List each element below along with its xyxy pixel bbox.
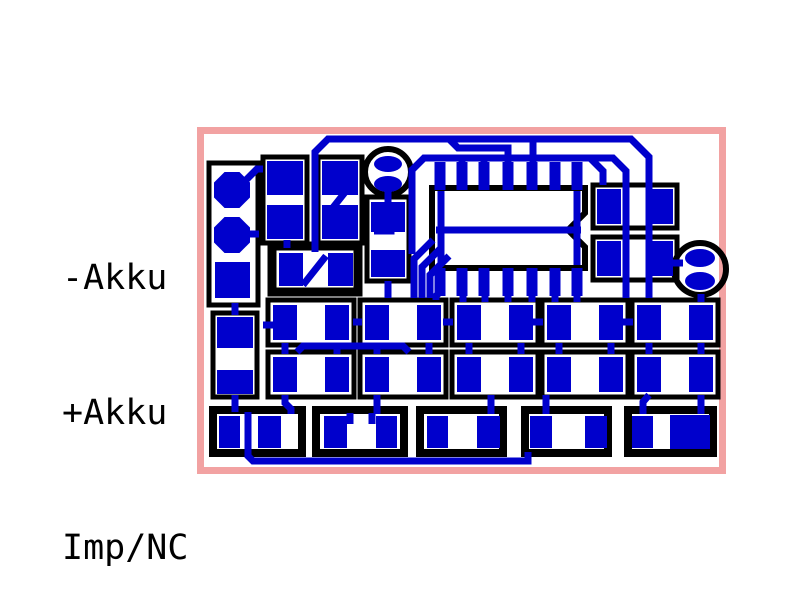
pad: [325, 357, 349, 392]
pad: [689, 305, 713, 340]
pad: [371, 250, 405, 277]
pad: [217, 317, 253, 348]
pad: [457, 305, 481, 340]
ic-pad: [479, 268, 490, 296]
pad: [599, 305, 623, 340]
pad: [322, 205, 358, 239]
screenshot-root: -Akku +Akku Imp/NC: [0, 0, 800, 600]
pad: [417, 305, 441, 340]
ic-pad: [550, 268, 561, 296]
pad: [597, 189, 621, 224]
ic-pad: [527, 162, 538, 190]
ic-pad: [527, 268, 538, 296]
ic-pad: [550, 162, 561, 190]
pad: [585, 416, 607, 448]
pad: [365, 357, 389, 392]
ic-pad: [479, 162, 490, 190]
pad: [267, 161, 303, 195]
pad: [547, 305, 571, 340]
pad: [637, 357, 661, 392]
pad: [328, 253, 353, 286]
pad: [599, 357, 623, 392]
pad: [597, 241, 621, 276]
pad: [685, 272, 715, 290]
pad: [215, 262, 250, 298]
ic-pad: [503, 268, 514, 296]
pad: [376, 416, 397, 448]
pad: [685, 249, 715, 267]
pcb-layout-canvas: [0, 0, 800, 600]
ic-pad: [457, 162, 468, 190]
pad: [477, 416, 500, 448]
pad: [689, 357, 713, 392]
ic-pad: [572, 268, 583, 296]
pad: [547, 357, 571, 392]
pad: [457, 357, 481, 392]
ic-pad: [503, 162, 514, 190]
pad: [324, 416, 347, 448]
pad: [374, 156, 402, 172]
pad: [325, 305, 349, 340]
pad: [509, 305, 533, 340]
pad: [365, 305, 389, 340]
copper-trace: [303, 256, 326, 285]
pad: [219, 416, 240, 448]
pad: [214, 217, 250, 253]
pad: [217, 370, 253, 394]
pad: [530, 416, 552, 448]
pad: [322, 161, 358, 195]
pad: [632, 416, 653, 448]
pad: [670, 415, 710, 449]
pad: [417, 357, 441, 392]
ic-pad: [457, 268, 468, 296]
pad: [279, 253, 303, 286]
pad: [273, 305, 297, 340]
pad: [427, 416, 448, 448]
pad: [637, 305, 661, 340]
ic-pad: [435, 162, 446, 190]
pad: [258, 416, 281, 448]
pad: [267, 205, 303, 239]
copper-trace: [590, 158, 603, 185]
ic-pad: [572, 162, 583, 190]
pad: [273, 357, 297, 392]
pad: [509, 357, 533, 392]
